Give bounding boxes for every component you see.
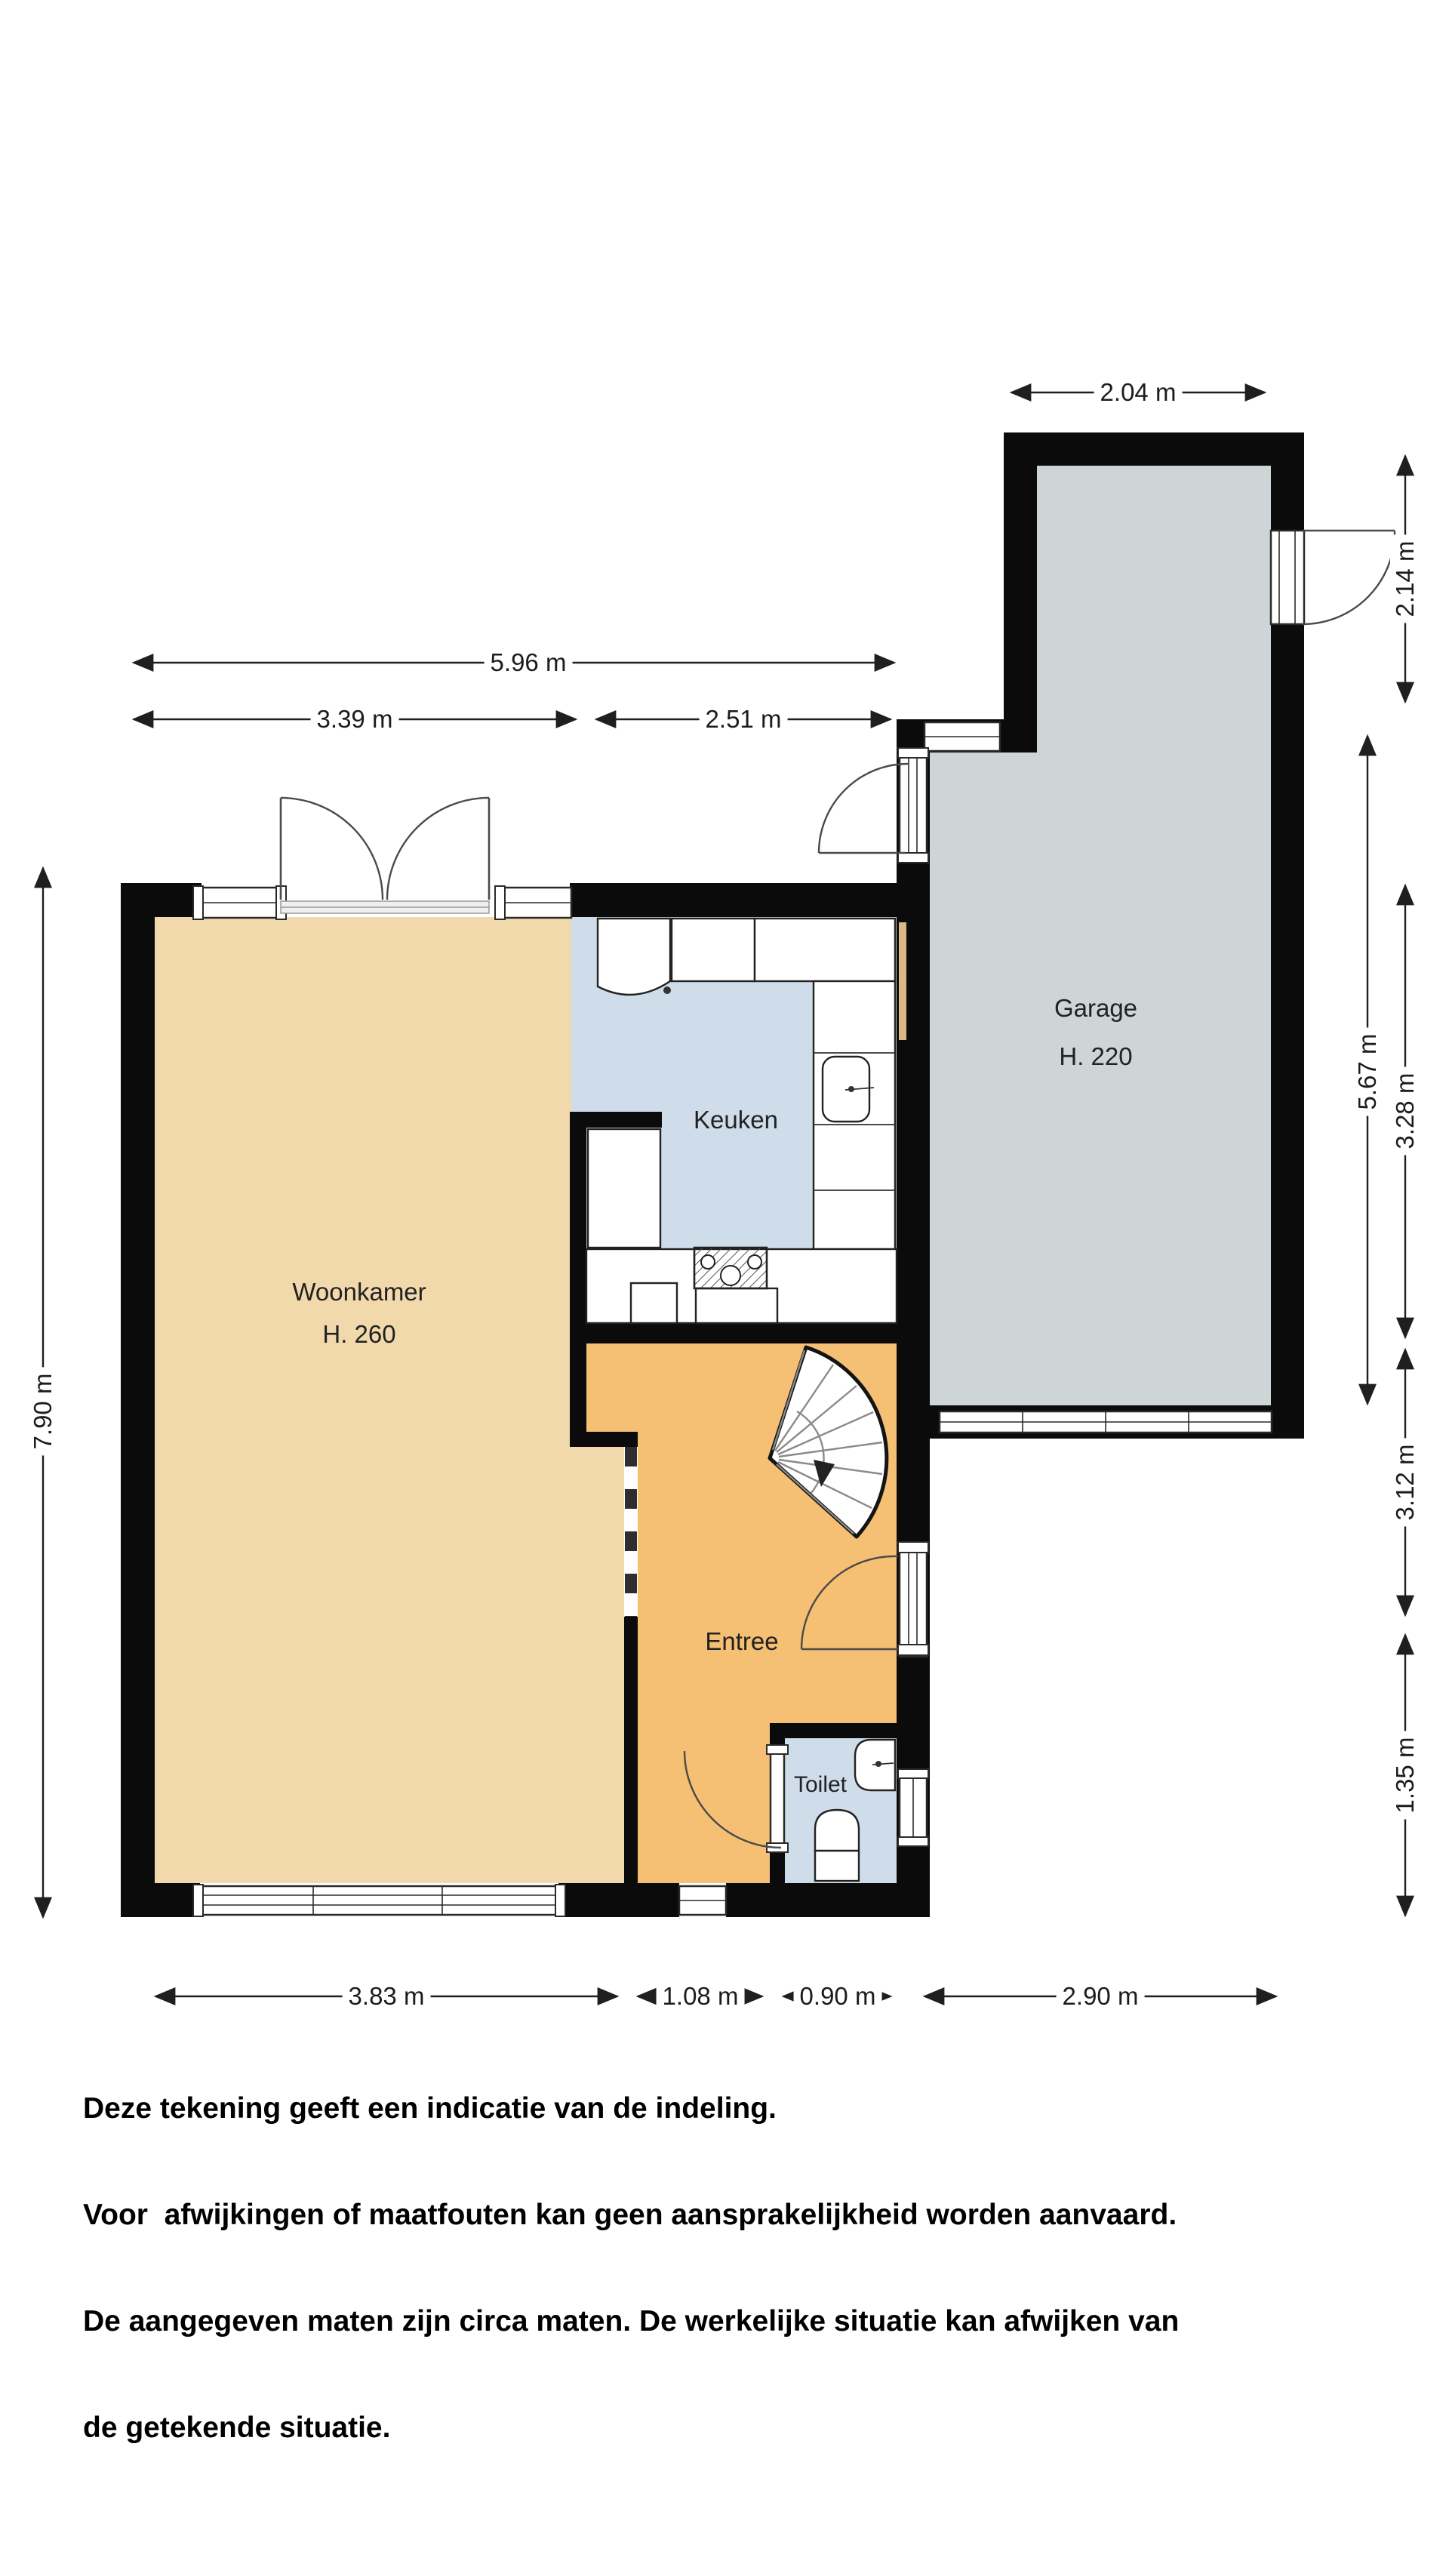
garage-floor (930, 462, 1271, 1405)
woonkamer-label: Woonkamer (292, 1278, 426, 1306)
kitchen-garage-door (899, 922, 906, 1040)
garage-label: Garage (1054, 994, 1137, 1023)
dim-right-b: 3.12 m (1390, 1439, 1420, 1527)
dim-left-total: 7.90 m (28, 1368, 58, 1456)
floor-plan-page: Woonkamer H. 260 Keuken Garage H. 220 En… (0, 0, 1449, 2576)
garage-height-label: H. 220 (1059, 1042, 1132, 1071)
open-passage-dashed (624, 1447, 638, 1617)
garage-side-door (1271, 531, 1395, 624)
french-doors (281, 798, 489, 913)
tall-cabinet (588, 1129, 660, 1248)
cabinet (631, 1283, 677, 1323)
dim-top-right: 2.51 m (700, 704, 788, 734)
disclaimer-line: Deze tekening geeft een indicatie van de… (83, 2091, 1179, 2126)
dim-right-c: 1.35 m (1390, 1731, 1420, 1820)
dim-bottom-1: 3.83 m (343, 1981, 431, 2011)
back-door (819, 748, 928, 863)
dim-right-upper: 2.14 m (1390, 535, 1420, 623)
stove (694, 1248, 767, 1288)
entree-label: Entree (705, 1627, 778, 1656)
disclaimer-line: Voor afwijkingen of maatfouten kan geen … (83, 2197, 1179, 2233)
toilet-label: Toilet (794, 1772, 847, 1798)
dim-top-total: 5.96 m (485, 648, 573, 678)
disclaimer-line: de getekende situatie. (83, 2410, 1179, 2445)
room-floors (155, 462, 1271, 1883)
woonkamer-floor (155, 917, 624, 1883)
dim-bottom-3: 0.90 m (794, 1981, 882, 2011)
dim-garage-top: 2.04 m (1094, 377, 1183, 408)
window (495, 886, 571, 919)
washbasin (855, 1740, 895, 1790)
dim-right-garage: 5.67 m (1352, 1028, 1383, 1116)
cabinet (696, 1288, 777, 1323)
window (193, 1885, 565, 1916)
window (924, 722, 1000, 751)
dim-right-a: 3.28 m (1390, 1067, 1420, 1156)
disclaimer-text: Deze tekening geeft een indicatie van de… (83, 2020, 1179, 2481)
keuken-label: Keuken (694, 1106, 778, 1134)
cabinet-knob (663, 986, 671, 994)
woonkamer-height-label: H. 260 (322, 1320, 395, 1349)
window (193, 886, 286, 919)
kitchen-counter (755, 919, 895, 981)
kitchen-counter (672, 919, 755, 981)
dim-top-left: 3.39 m (311, 704, 399, 734)
wc (815, 1810, 859, 1881)
kitchen-cabinet-curved (598, 919, 670, 995)
disclaimer-line: De aangegeven maten zijn circa maten. De… (83, 2304, 1179, 2339)
window (898, 1769, 928, 1846)
window (940, 1411, 1272, 1433)
dim-bottom-4: 2.90 m (1057, 1981, 1145, 2011)
window (679, 1886, 726, 1915)
dim-bottom-2: 1.08 m (657, 1981, 745, 2011)
